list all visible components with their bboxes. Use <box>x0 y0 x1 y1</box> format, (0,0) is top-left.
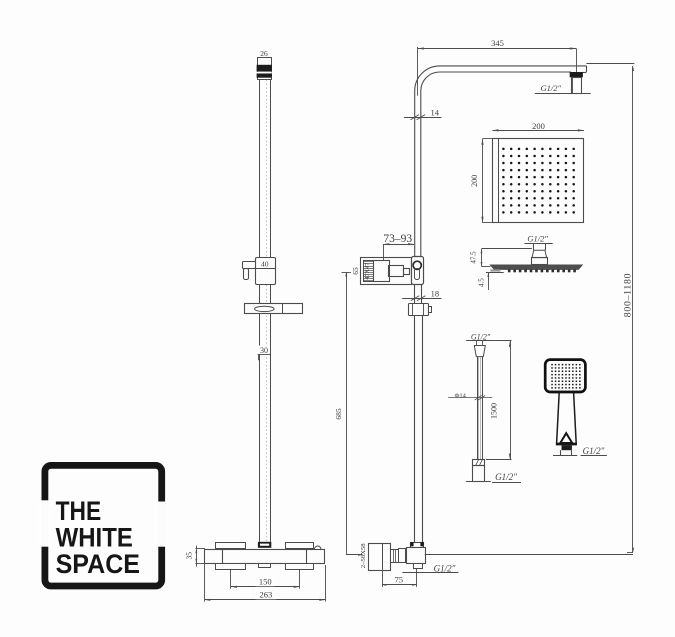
svg-text:2–58X58: 2–58X58 <box>360 543 367 569</box>
svg-text:G1/2″: G1/2″ <box>434 563 456 573</box>
svg-text:G1/2″: G1/2″ <box>541 83 562 93</box>
svg-text:THE: THE <box>56 498 102 527</box>
svg-text:47X47: 47X47 <box>364 263 371 280</box>
svg-text:Φ14: Φ14 <box>455 392 467 399</box>
svg-text:G1/2″: G1/2″ <box>471 332 491 341</box>
svg-text:G1/2″: G1/2″ <box>495 472 517 482</box>
svg-text:75: 75 <box>394 574 403 584</box>
svg-text:263: 263 <box>260 590 273 600</box>
svg-text:14: 14 <box>431 108 440 118</box>
svg-text:35: 35 <box>184 552 193 560</box>
svg-text:G1/2″: G1/2″ <box>527 234 548 244</box>
svg-text:47.5: 47.5 <box>469 251 477 264</box>
svg-text:G1/2″: G1/2″ <box>583 446 605 456</box>
svg-text:800–1180: 800–1180 <box>622 273 633 317</box>
svg-text:685: 685 <box>334 408 343 420</box>
svg-text:WHITE: WHITE <box>56 523 133 552</box>
svg-text:65: 65 <box>351 267 360 275</box>
svg-text:SPACE: SPACE <box>56 550 140 579</box>
svg-text:150: 150 <box>259 577 272 587</box>
svg-text:1500: 1500 <box>489 403 498 419</box>
svg-text:30: 30 <box>260 346 268 355</box>
svg-text:4.5: 4.5 <box>477 278 485 287</box>
svg-text:73–93: 73–93 <box>383 233 412 245</box>
svg-text:200: 200 <box>470 175 479 187</box>
svg-text:26: 26 <box>260 49 268 58</box>
svg-text:200: 200 <box>532 121 545 131</box>
svg-text:345: 345 <box>491 38 504 48</box>
svg-text:40: 40 <box>261 259 269 268</box>
svg-text:18: 18 <box>431 289 440 299</box>
